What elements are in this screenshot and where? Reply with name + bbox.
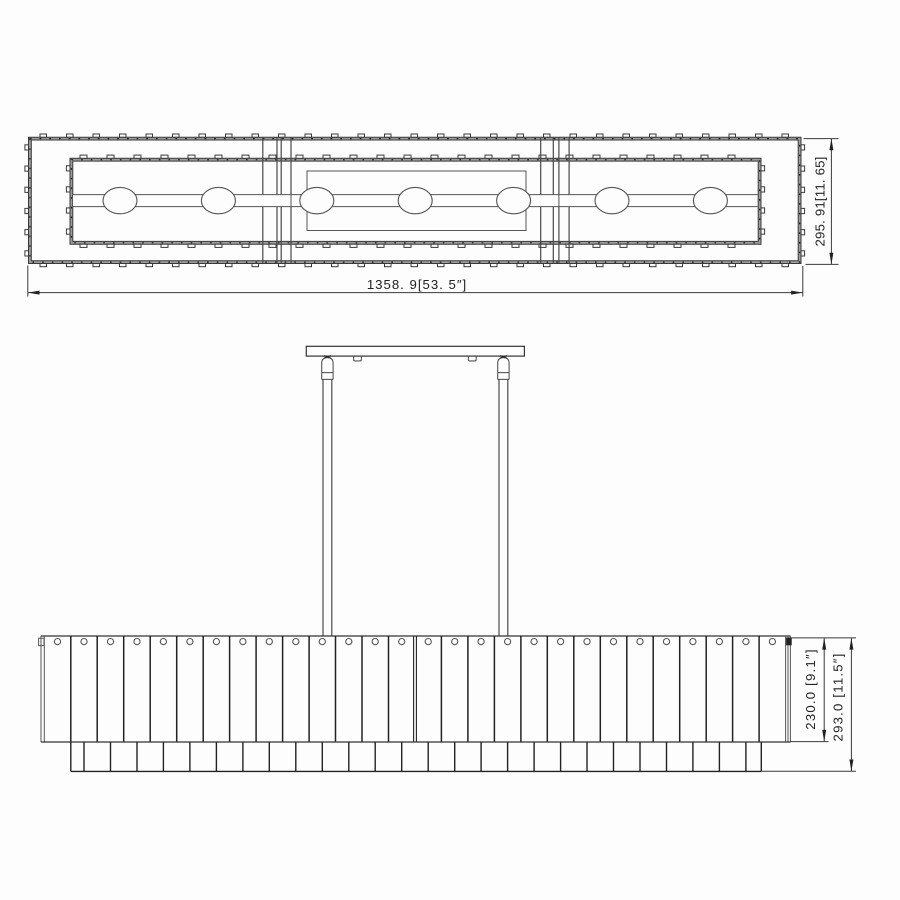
svg-text:293.0 [11.5″]: 293.0 [11.5″] (831, 653, 846, 742)
svg-text:230.0 [9.1″]: 230.0 [9.1″] (803, 648, 818, 729)
svg-text:295. 91[11. 65]: 295. 91[11. 65] (813, 156, 828, 246)
svg-text:1358. 9[53. 5″]: 1358. 9[53. 5″] (367, 277, 467, 292)
